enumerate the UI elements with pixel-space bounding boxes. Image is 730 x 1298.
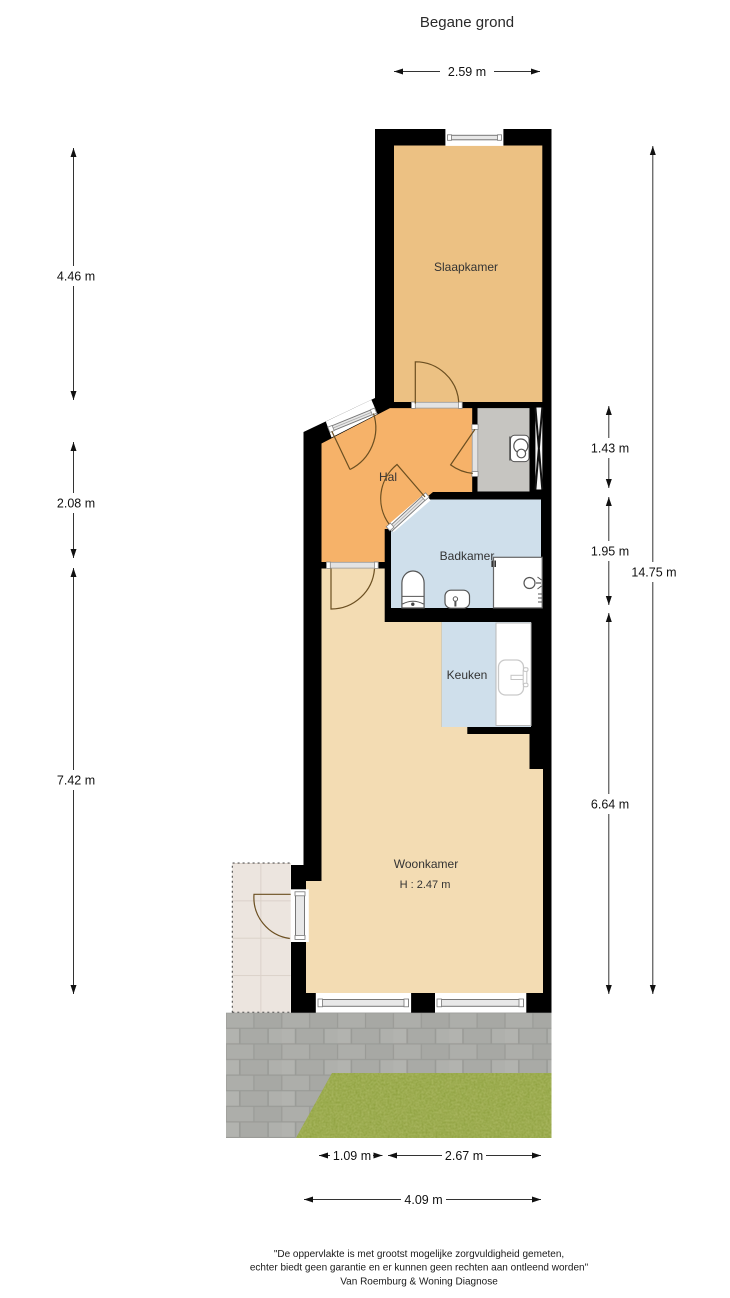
- svg-text:6.64 m: 6.64 m: [591, 798, 629, 812]
- svg-text:2.08 m: 2.08 m: [57, 497, 95, 511]
- svg-text:Hal: Hal: [379, 470, 397, 484]
- svg-text:4.46 m: 4.46 m: [57, 270, 95, 284]
- svg-text:Begane grond: Begane grond: [420, 14, 514, 31]
- svg-text:2.67 m: 2.67 m: [445, 1149, 483, 1163]
- svg-text:Woonkamer: Woonkamer: [394, 857, 458, 871]
- svg-text:Badkamer: Badkamer: [440, 549, 495, 563]
- svg-text:H : 2.47 m: H : 2.47 m: [400, 879, 451, 891]
- svg-text:1.09 m: 1.09 m: [333, 1149, 371, 1163]
- svg-text:"De oppervlakte is met grootst: "De oppervlakte is met grootst mogelijke…: [274, 1249, 564, 1260]
- svg-text:1.43 m: 1.43 m: [591, 442, 629, 456]
- svg-text:Keuken: Keuken: [447, 668, 488, 682]
- svg-text:4.09 m: 4.09 m: [404, 1193, 442, 1207]
- svg-text:1.95 m: 1.95 m: [591, 545, 629, 559]
- svg-text:Slaapkamer: Slaapkamer: [434, 260, 498, 274]
- svg-text:echter biedt geen garantie en: echter biedt geen garantie en er kunnen …: [250, 1263, 589, 1274]
- svg-text:14.75 m: 14.75 m: [631, 566, 676, 580]
- svg-text:7.42 m: 7.42 m: [57, 774, 95, 788]
- svg-text:Van Roemburg & Woning Diagnose: Van Roemburg & Woning Diagnose: [340, 1276, 498, 1287]
- svg-text:2.59 m: 2.59 m: [448, 65, 486, 79]
